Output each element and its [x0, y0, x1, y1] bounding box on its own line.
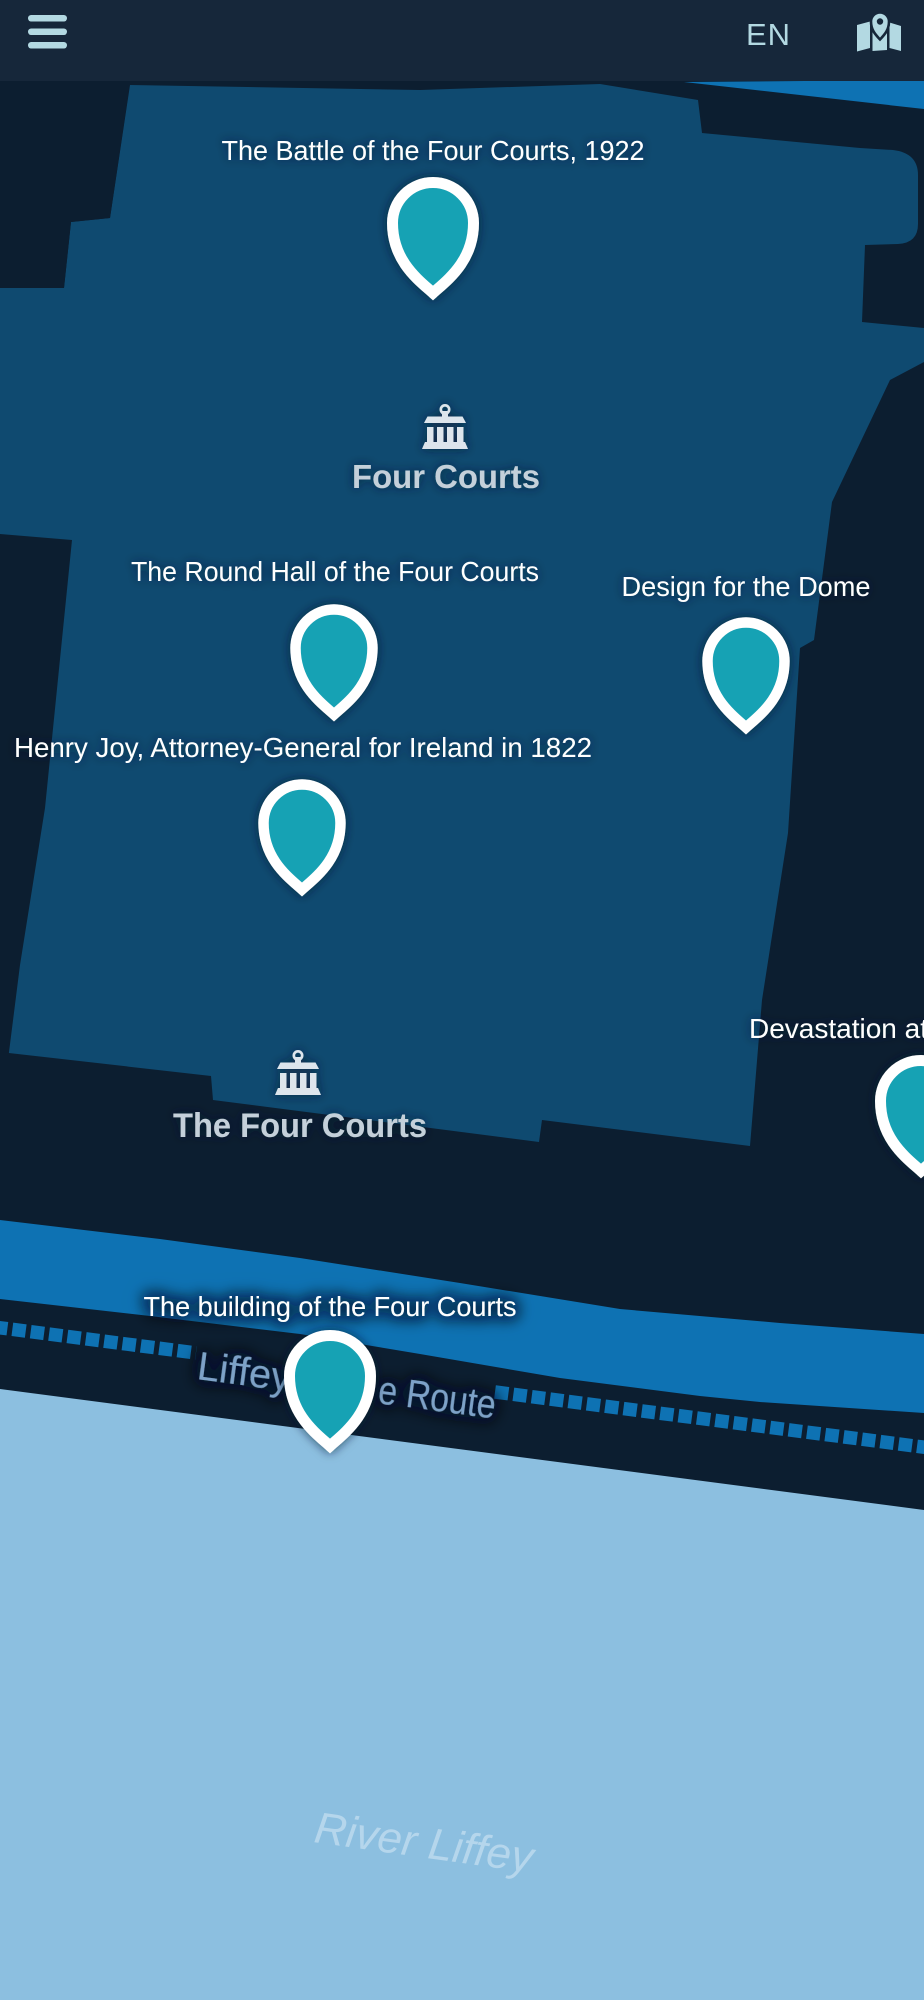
svg-text:Henry Joy, Attorney-General fo: Henry Joy, Attorney-General for Ireland … [14, 732, 592, 763]
svg-text:Devastation at the Four Courts: Devastation at the Four Courts [749, 1013, 924, 1044]
svg-text:The Battle of the Four Courts,: The Battle of the Four Courts, 1922 [222, 135, 645, 166]
svg-text:Design for the Dome: Design for the Dome [622, 571, 871, 602]
svg-text:The Four Courts: The Four Courts [173, 1107, 427, 1145]
svg-text:Four Courts: Four Courts [352, 458, 540, 495]
svg-text:The building of the Four Court: The building of the Four Courts [144, 1291, 517, 1322]
svg-text:The Round Hall of the Four Cou: The Round Hall of the Four Courts [131, 556, 539, 587]
svg-text:EN: EN [746, 17, 791, 52]
